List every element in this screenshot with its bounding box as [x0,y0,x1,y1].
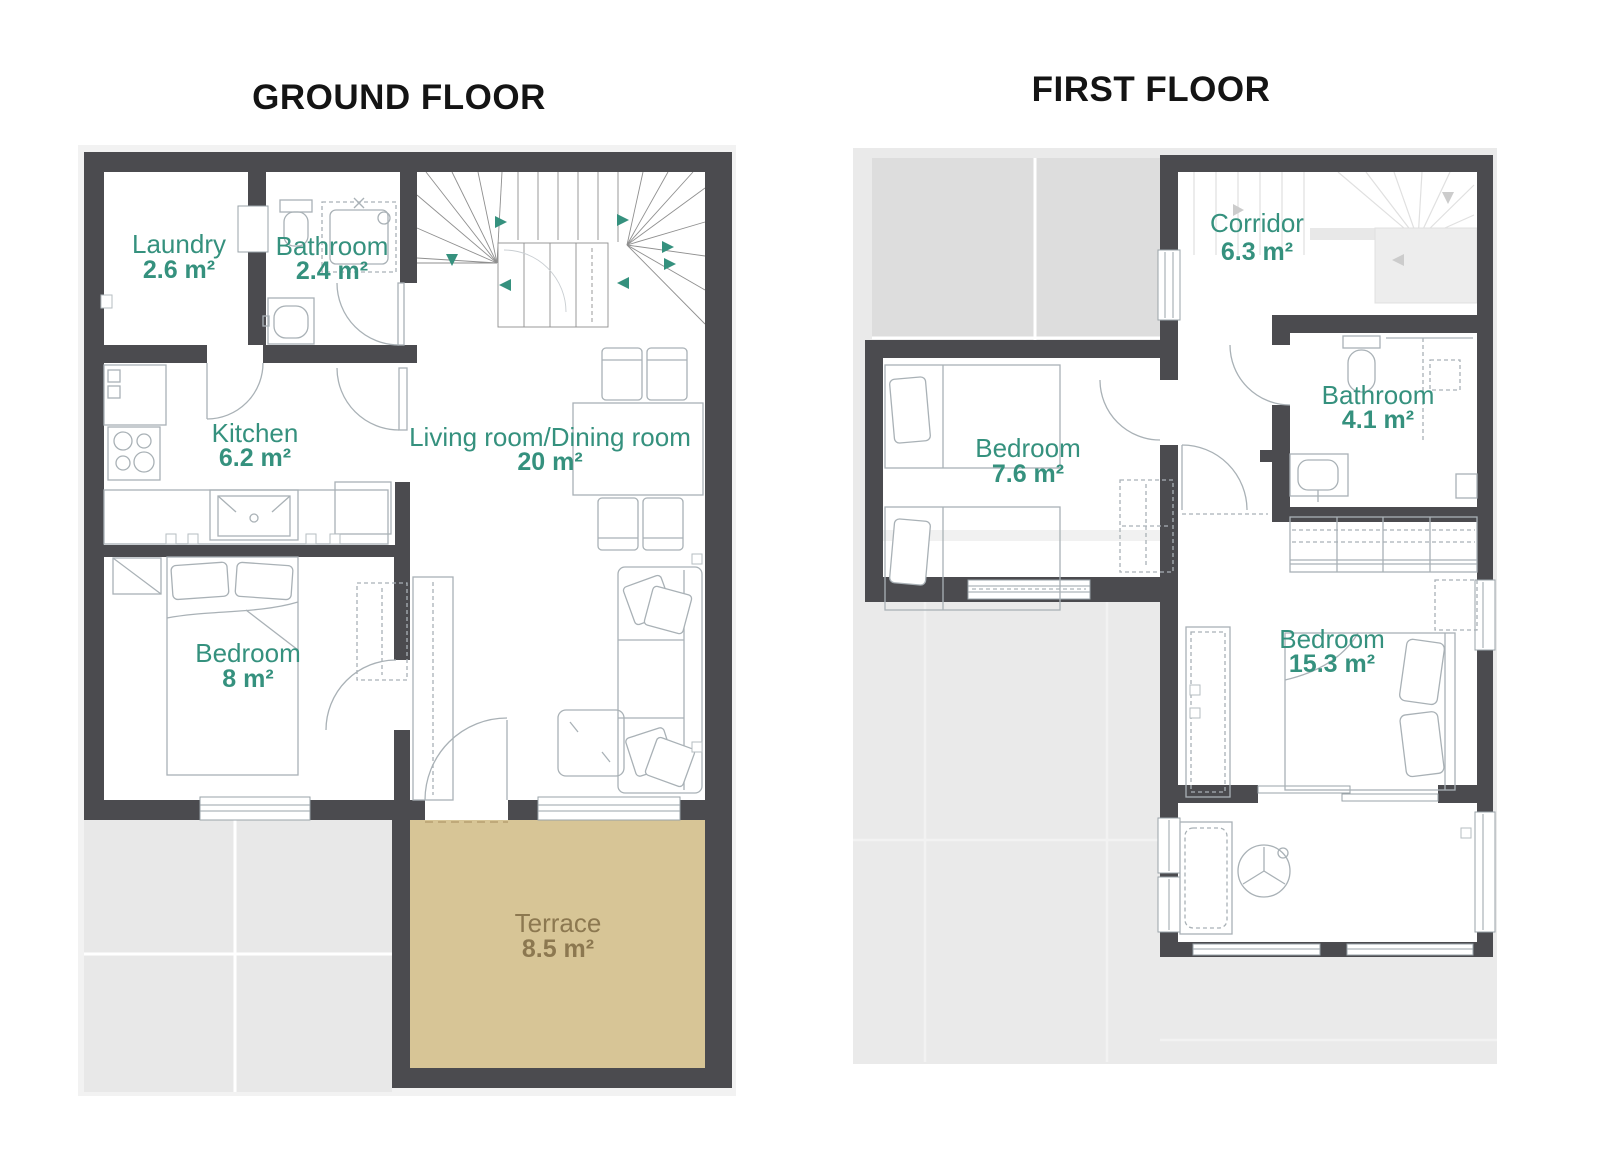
laundry-label: Laundry [132,229,226,259]
first-floor-title: FIRST FLOOR [901,70,1401,110]
pillow-icon [171,562,229,600]
gf-bathroom-area: 2.4 m² [296,257,368,285]
bedroom-window [200,797,310,820]
garden-patio [84,820,392,1092]
terrace-area: 8.5 m² [522,935,594,963]
corridor-area: 6.3 m² [1221,238,1293,266]
pillow-icon [889,519,930,586]
laundry-area: 2.6 m² [143,256,215,284]
ff-small-bedroom-label: Bedroom [975,433,1081,463]
entrance-mat [347,349,383,357]
balcony-window [1475,812,1495,932]
floor-plan-page: GROUND FLOOR FIRST FLOOR [0,0,1600,1167]
living-room-window [538,797,680,820]
living-room-area: 20 m² [517,448,582,476]
laundry-niche [238,206,268,252]
kitchen-area: 6.2 m² [219,444,291,472]
pillow-icon [1399,711,1444,777]
ff-large-bedroom-window [1475,580,1495,650]
pillow-icon [235,562,293,600]
gf-bedroom-label: Bedroom [195,638,301,668]
ff-bathroom-area: 4.1 m² [1342,406,1414,434]
ground-floor-title: GROUND FLOOR [149,78,649,118]
first-floor-plan: Corridor 6.3 m² Bathroom 4.1 m² Bedroom … [838,140,1518,1100]
corridor-window [1158,250,1180,320]
ff-small-bedroom-area: 7.6 m² [992,460,1064,488]
terrace-label: Terrace [515,908,602,938]
radiator-icon [101,295,112,308]
corridor-label: Corridor [1210,208,1304,238]
ground-floor-plan: Laundry 2.6 m² Bathroom 2.4 m² Kitchen 6… [78,140,738,1100]
pillow-icon [889,377,930,444]
ff-large-bedroom-area: 15.3 m² [1289,650,1375,678]
pillow-icon [1399,639,1445,706]
gf-bedroom-area: 8 m² [222,665,273,693]
